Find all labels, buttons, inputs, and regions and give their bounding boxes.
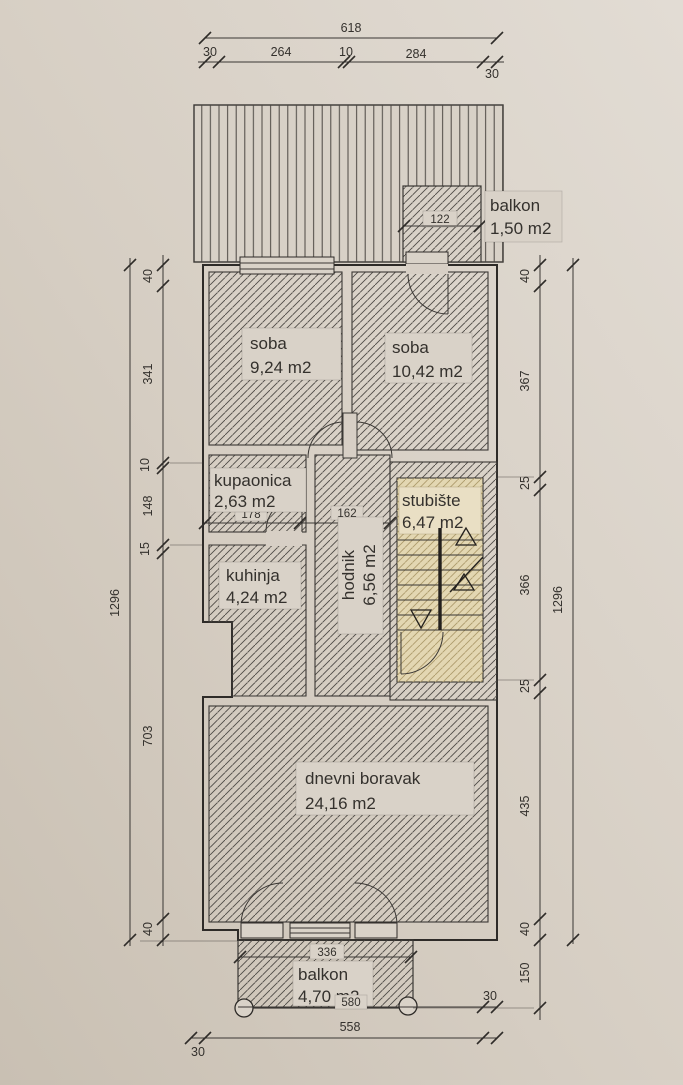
balkon-top-area: 1,50 m2 — [490, 219, 551, 238]
soba2-label: soba — [392, 338, 429, 357]
balkon-top-label: balkon — [490, 196, 540, 215]
hodnik-door-post — [343, 413, 357, 458]
dim-right-s1: 367 — [518, 371, 532, 392]
balkon-column-right — [399, 997, 417, 1015]
dnevni-label: dnevni boravak — [305, 769, 421, 788]
dim-left-s4: 15 — [138, 542, 152, 556]
dim-right-s5: 435 — [518, 796, 532, 817]
hodnik-label: hodnik — [339, 549, 358, 600]
dim-bottom-width: 558 — [340, 1020, 361, 1034]
hodnik-area: 6,56 m2 — [360, 544, 379, 605]
kuhinja-label: kuhinja — [226, 566, 280, 585]
dnevni-door-left — [241, 923, 283, 938]
dim-left-overall: 1296 — [108, 589, 122, 617]
dim-top-s1: 264 — [271, 45, 292, 59]
dim-right-s2: 25 — [518, 476, 532, 490]
dim-top-s0: 30 — [203, 45, 217, 59]
balkon-column-left — [235, 999, 253, 1017]
soba2-balkon-door — [406, 252, 448, 264]
dim-right-s7: 150 — [518, 963, 532, 984]
soba2-area: 10,42 m2 — [392, 362, 463, 381]
room-balkon-bottom: 336 balkon 4,70 m2 — [234, 940, 417, 1017]
kupaonica-label: kupaonica — [214, 471, 292, 490]
stubiste-area: 6,47 m2 — [402, 513, 463, 532]
kupaonica-area: 2,63 m2 — [214, 492, 275, 511]
dim-right-overall: 1296 — [551, 586, 565, 614]
kuhinja-area: 4,24 m2 — [226, 588, 287, 607]
balkon-bottom-label: balkon — [298, 965, 348, 984]
dim-right-s0: 40 — [518, 269, 532, 283]
dim-left-s1: 341 — [141, 364, 155, 385]
dim-balkon-top-width: 122 — [430, 214, 449, 226]
dim-bottom-right: 30 — [483, 989, 497, 1003]
dim-left-s3: 148 — [141, 496, 155, 517]
dim-balkon-width: 580 — [341, 997, 360, 1009]
dnevni-door-right — [355, 923, 397, 938]
dim-top-total: 618 — [341, 21, 362, 35]
dnevni-window — [290, 923, 350, 938]
soba1-area: 9,24 m2 — [250, 358, 311, 377]
floor-plan-photo: 122 balkon 1,50 m2 stubište 6,47 m2 — [0, 0, 683, 1080]
dim-right-s4: 25 — [518, 679, 532, 693]
dim-top-s2: 10 — [339, 45, 353, 59]
dim-top-s3: 284 — [406, 47, 427, 61]
dim-left-s2: 10 — [138, 458, 152, 472]
soba1-label: soba — [250, 334, 287, 353]
dnevni-area: 24,16 m2 — [305, 794, 376, 813]
dim-left-s5: 703 — [141, 726, 155, 747]
dim-top-s4: 30 — [485, 67, 499, 81]
dim-left-s0: 40 — [141, 269, 155, 283]
dim-right-s3: 366 — [518, 575, 532, 596]
staircase: stubište 6,47 m2 — [397, 478, 483, 682]
stubiste-label: stubište — [402, 491, 461, 510]
dim-balkon-opening: 336 — [317, 947, 336, 959]
dim-bottom-left: 30 — [191, 1045, 205, 1059]
dim-right-s6: 40 — [518, 922, 532, 936]
dim-left-s6: 40 — [141, 922, 155, 936]
soba1-window — [240, 257, 334, 274]
